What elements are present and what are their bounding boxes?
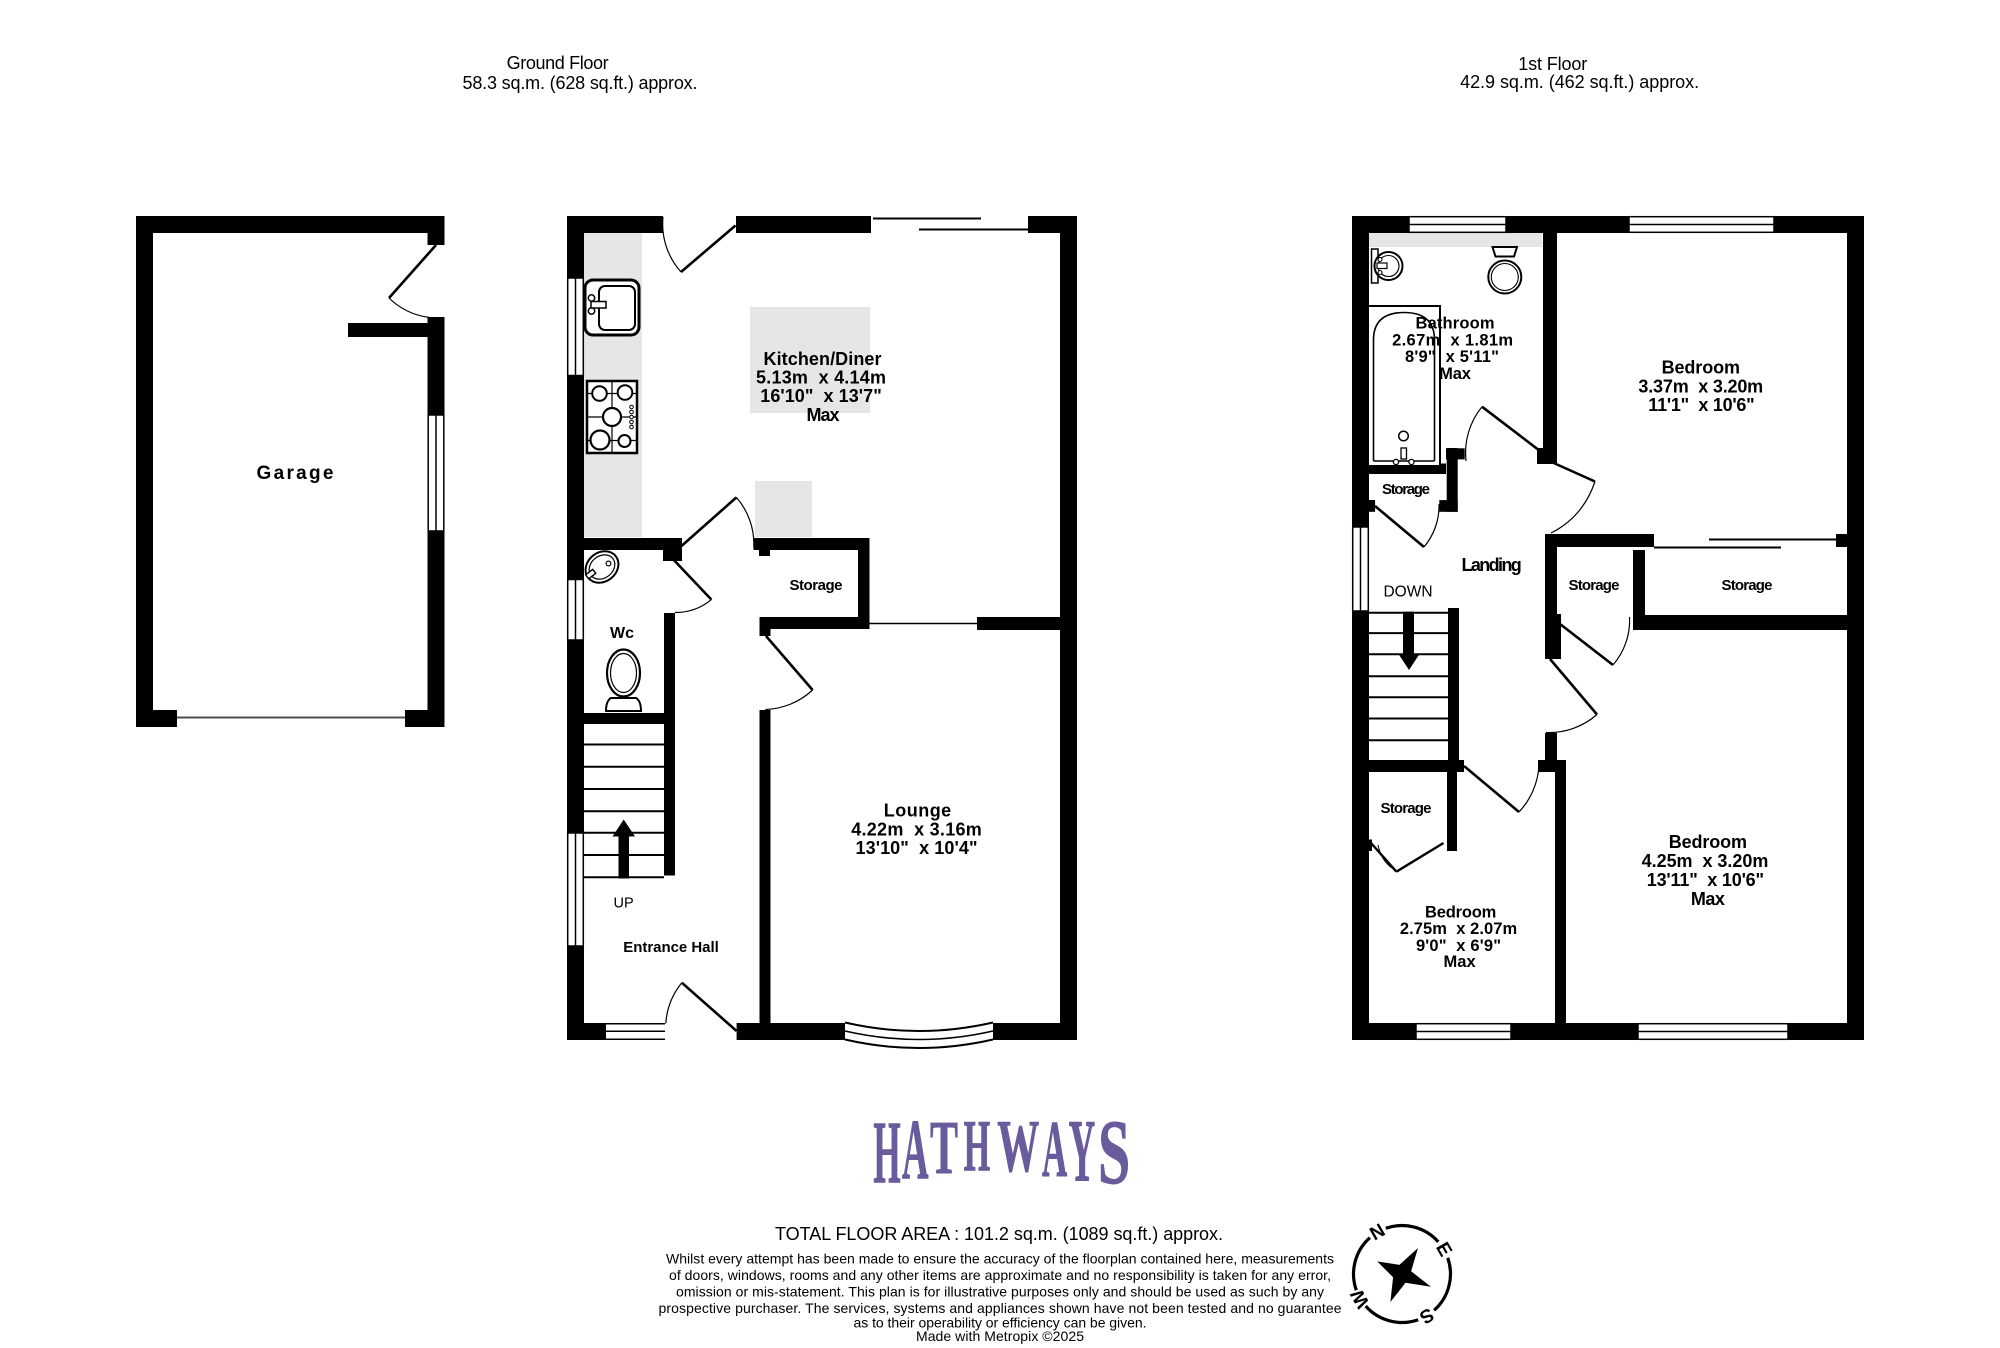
svg-text:Max: Max: [1444, 953, 1477, 971]
svg-text:A: A: [1042, 1105, 1067, 1194]
svg-text:4.22m x 3.16m: 4.22m x 3.16m: [851, 819, 982, 839]
svg-text:H: H: [873, 1104, 900, 1202]
svg-text:Max: Max: [1691, 889, 1725, 909]
svg-text:UP: UP: [614, 896, 634, 912]
svg-text:5.13m x 4.14m: 5.13m x 4.14m: [756, 368, 886, 388]
svg-text:TOTAL FLOOR AREA : 101.2 sq.m.: TOTAL FLOOR AREA : 101.2 sq.m. (1089 sq.…: [775, 1224, 1223, 1244]
svg-text:of doors, windows, rooms and a: of doors, windows, rooms and any other i…: [669, 1267, 1331, 1283]
svg-text:Y: Y: [1069, 1103, 1096, 1201]
svg-text:58.3 sq.m. (628 sq.ft.) approx: 58.3 sq.m. (628 sq.ft.) approx.: [463, 73, 698, 93]
svg-text:Ground Floor: Ground Floor: [507, 53, 609, 73]
svg-text:Wc: Wc: [610, 625, 634, 642]
svg-text:16'10" x 13'7": 16'10" x 13'7": [760, 386, 882, 406]
svg-text:1st Floor: 1st Floor: [1518, 54, 1587, 74]
svg-text:Bathroom: Bathroom: [1416, 315, 1495, 333]
svg-text:Max: Max: [1439, 365, 1472, 383]
svg-text:Max: Max: [807, 405, 840, 425]
svg-text:Storage: Storage: [1382, 481, 1430, 498]
svg-text:Kitchen/Diner: Kitchen/Diner: [764, 349, 882, 369]
svg-text:S: S: [1098, 1101, 1130, 1203]
svg-text:42.9 sq.m. (462 sq.ft.) approx: 42.9 sq.m. (462 sq.ft.) approx.: [1460, 72, 1699, 92]
svg-text:13'11" x 10'6": 13'11" x 10'6": [1647, 870, 1764, 890]
svg-text:Storage: Storage: [1569, 577, 1620, 594]
svg-text:omission or mis-statement. Thi: omission or mis-statement. This plan is …: [676, 1284, 1324, 1300]
svg-text:Landing: Landing: [1462, 555, 1522, 575]
svg-text:Bedroom: Bedroom: [1662, 357, 1740, 377]
svg-text:2.75m x 2.07m: 2.75m x 2.07m: [1400, 920, 1517, 938]
svg-text:3.37m x 3.20m: 3.37m x 3.20m: [1638, 377, 1763, 397]
svg-text:H: H: [964, 1105, 991, 1186]
svg-text:4.25m x 3.20m: 4.25m x 3.20m: [1642, 851, 1769, 871]
svg-text:Storage: Storage: [1381, 800, 1432, 817]
svg-text:Made with Metropix ©2025: Made with Metropix ©2025: [916, 1328, 1084, 1344]
svg-text:Bedroom: Bedroom: [1669, 832, 1747, 852]
svg-text:Storage: Storage: [790, 577, 843, 594]
svg-text:Lounge: Lounge: [884, 801, 951, 821]
svg-text:W: W: [997, 1106, 1039, 1188]
svg-text:Entrance Hall: Entrance Hall: [623, 939, 719, 956]
svg-text:13'10" x 10'4": 13'10" x 10'4": [856, 838, 978, 858]
svg-text:A: A: [902, 1103, 929, 1198]
svg-text:DOWN: DOWN: [1383, 584, 1432, 601]
svg-text:T: T: [930, 1106, 958, 1190]
svg-text:8'9" x 5'11": 8'9" x 5'11": [1405, 348, 1499, 366]
svg-text:2.67m x 1.81m: 2.67m x 1.81m: [1392, 331, 1513, 349]
svg-text:Storage: Storage: [1722, 577, 1773, 594]
svg-text:Whilst every attempt has been: Whilst every attempt has been made to en…: [666, 1251, 1334, 1267]
svg-text:11'1" x 10'6": 11'1" x 10'6": [1648, 395, 1754, 415]
